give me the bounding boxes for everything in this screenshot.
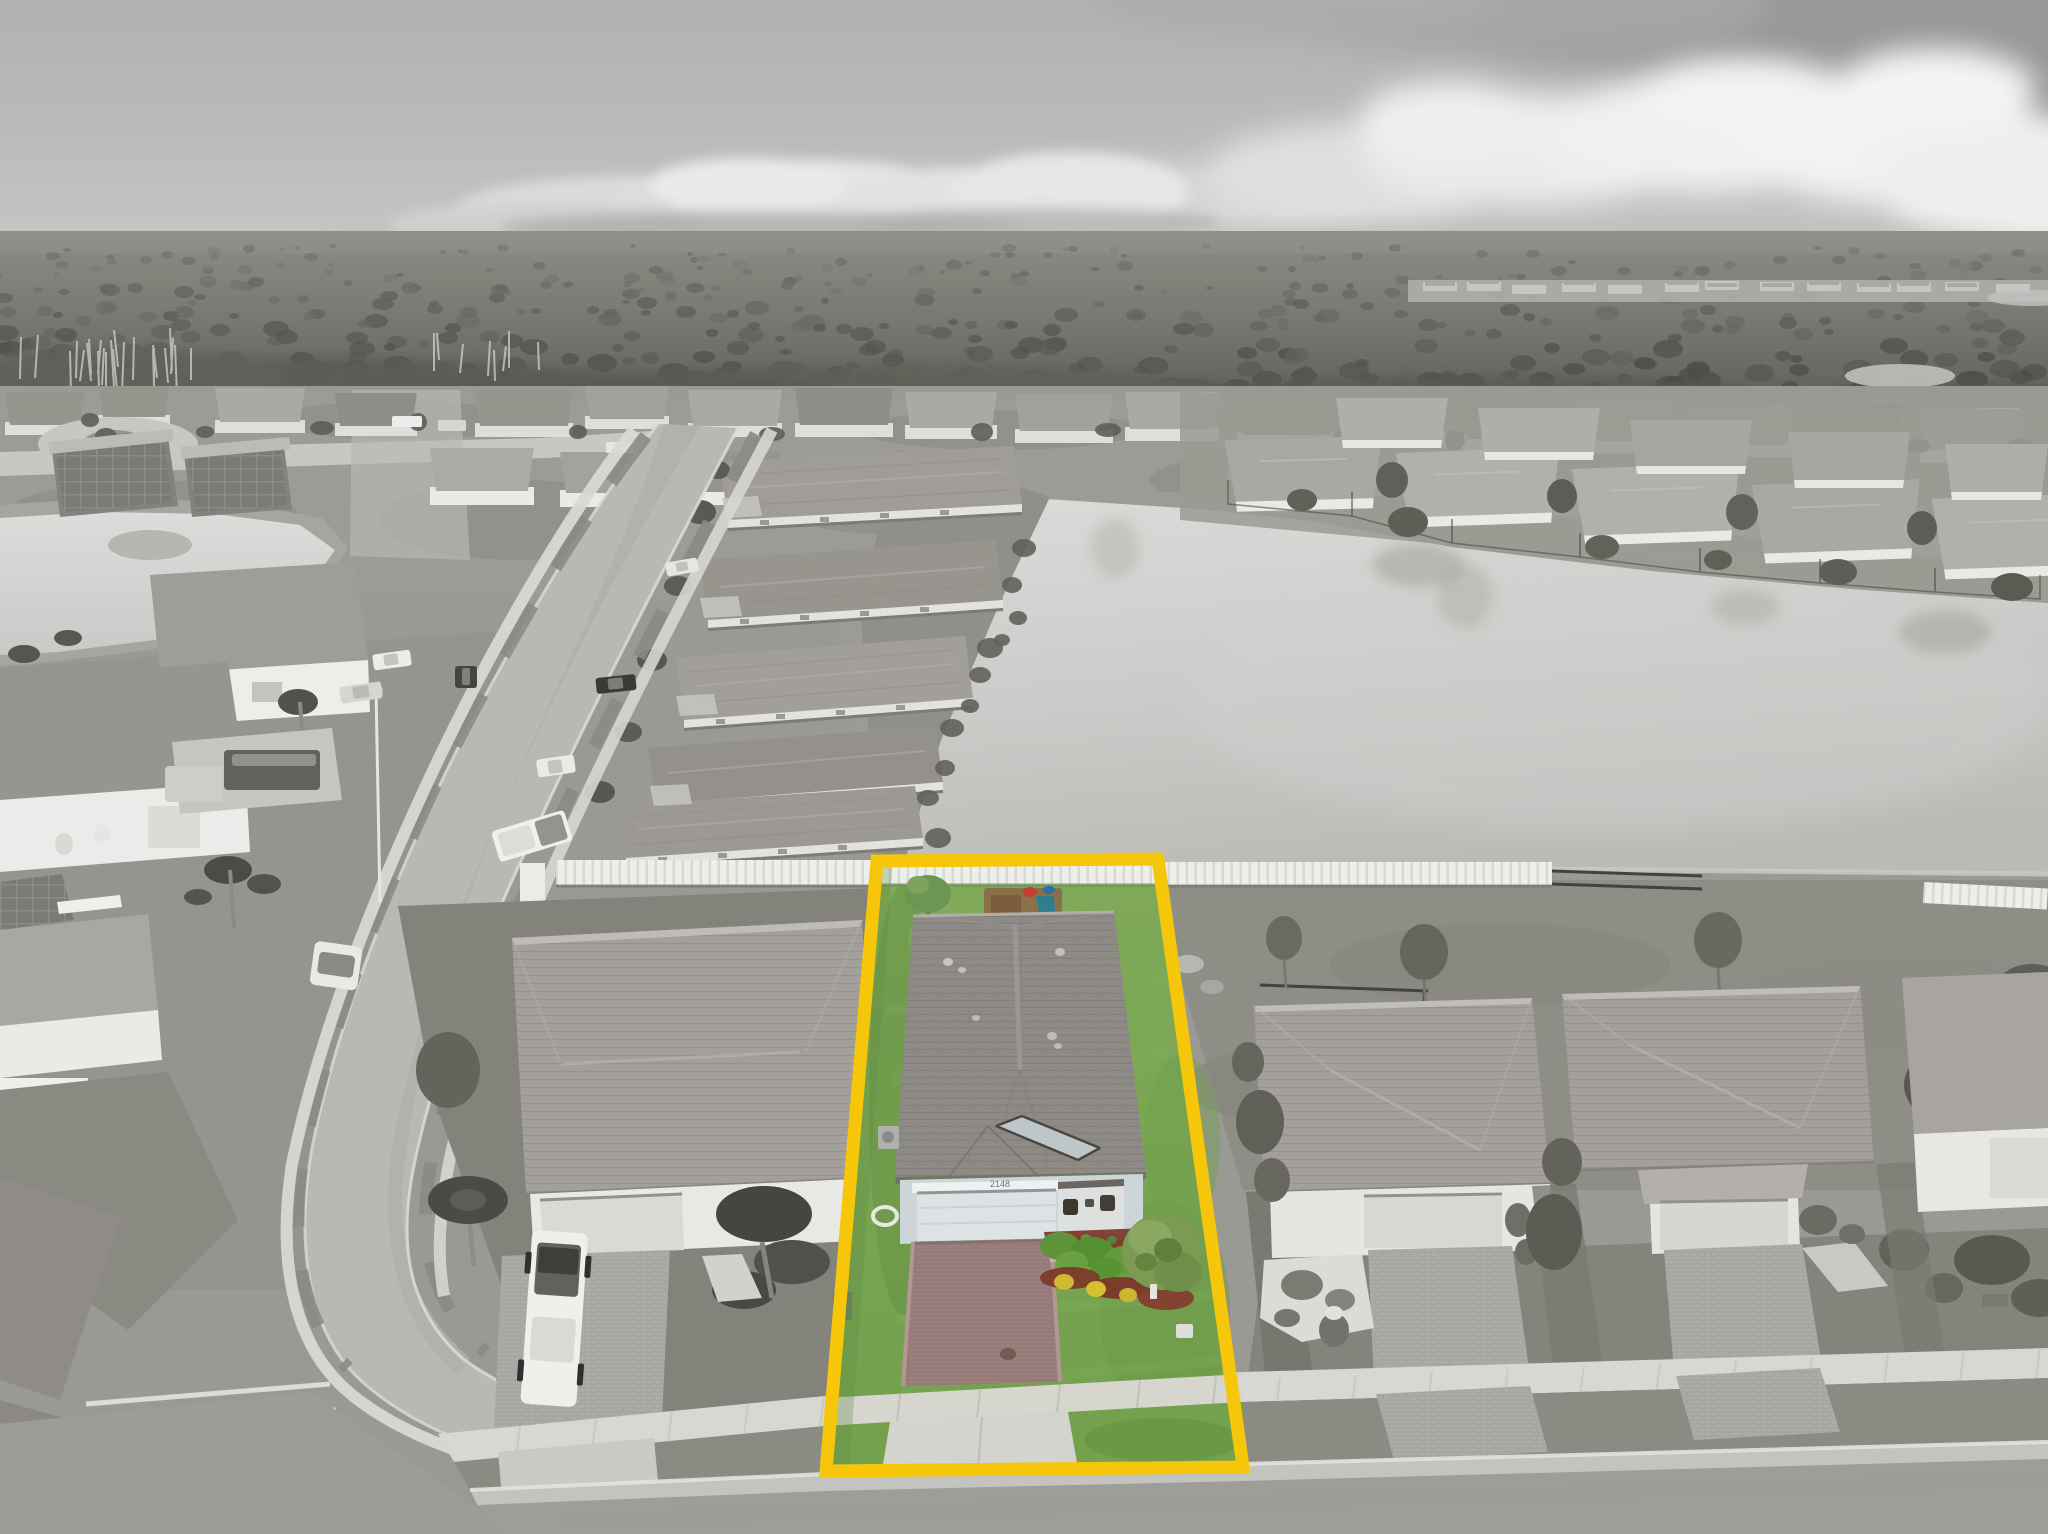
svg-text:2148: 2148 [990, 1179, 1010, 1189]
